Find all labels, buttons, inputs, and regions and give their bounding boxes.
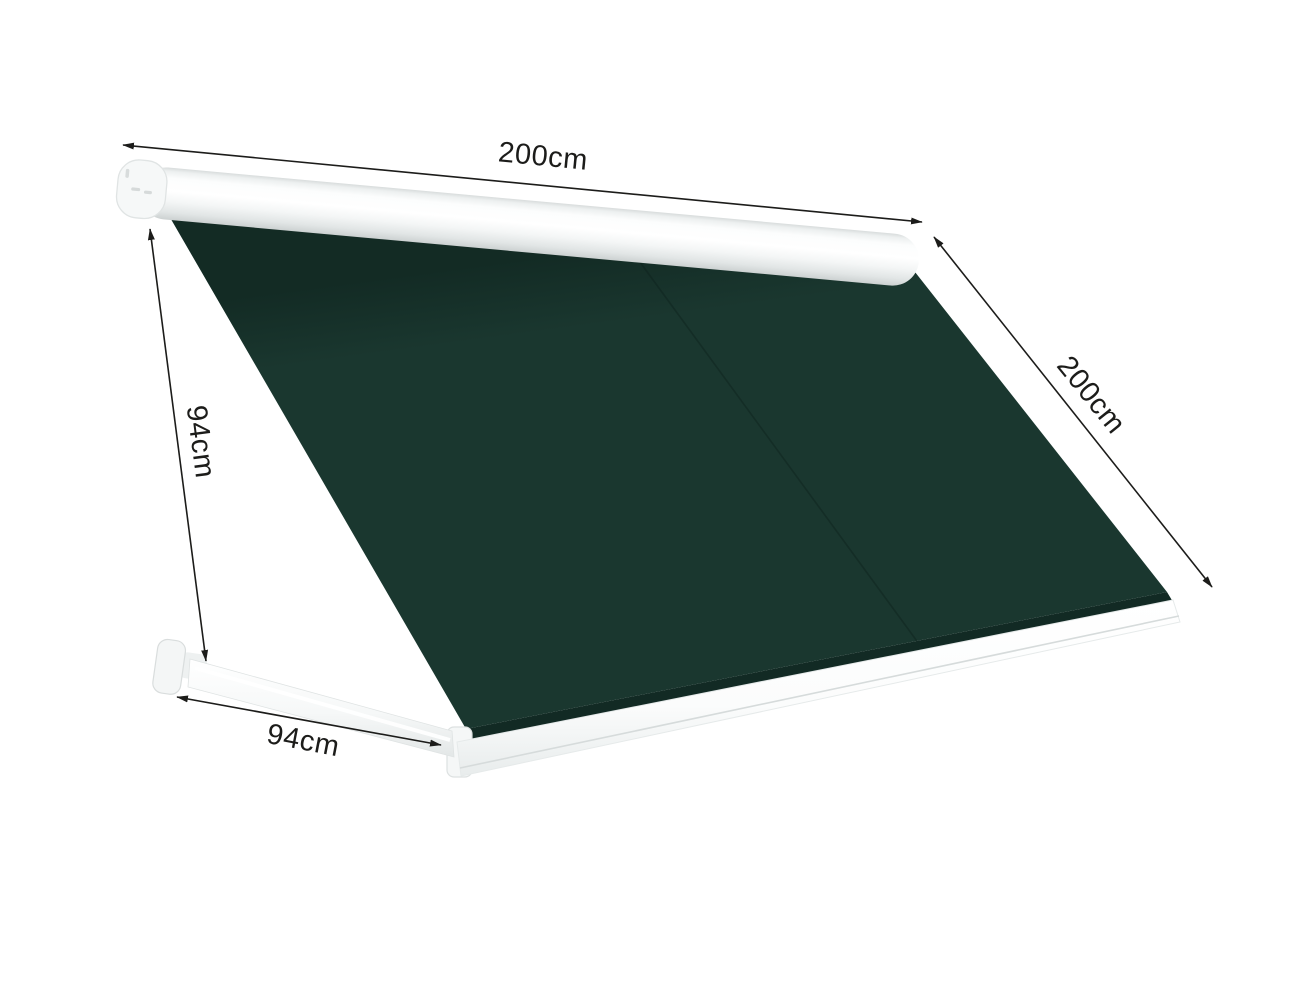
wall-bracket-plate: [152, 638, 187, 695]
awning-dimension-diagram: 200cm 200cm 94cm 94cm: [0, 0, 1300, 1000]
side-projection-dimension-label: 200cm: [1050, 350, 1132, 440]
roller-end-cap: [115, 158, 169, 220]
awning-diagram-canvas: 200cm 200cm 94cm 94cm: [0, 0, 1300, 1000]
awning-fabric-group: [168, 214, 1173, 752]
width-dimension-label: 200cm: [497, 136, 590, 176]
height-dimension-label: 94cm: [180, 403, 221, 480]
